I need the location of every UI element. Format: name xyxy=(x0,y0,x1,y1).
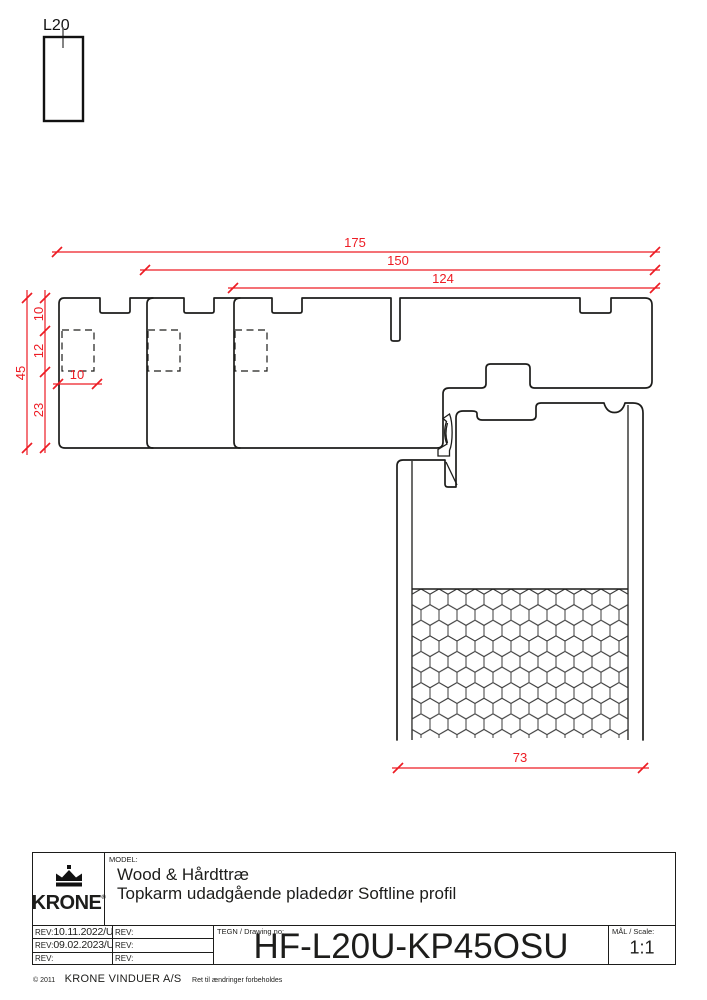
revision-row: REV: 09.02.2023/UK xyxy=(33,939,112,952)
dim-label-23: 23 xyxy=(31,403,46,417)
weather-seal xyxy=(438,414,452,456)
rights-reserved: Ret til ændringer forbeholdes xyxy=(192,977,282,984)
copyright-year: © 2011 xyxy=(33,977,55,984)
drawing-number-cell: TEGN / Drawing no: HF-L20U-KP45OSU xyxy=(214,926,609,965)
revision-column-empty: REV: REV: REV: xyxy=(113,926,214,965)
model-cell: MODEL: Wood & Hårdttræ Topkarm udadgåend… xyxy=(105,853,675,925)
logo-wordmark: KRONE® xyxy=(32,888,106,913)
dimension-150: 150 xyxy=(140,253,660,275)
logo-cell: KRONE® xyxy=(33,853,105,925)
dimension-groove-10: 10 xyxy=(53,367,102,389)
karm-variant-150-edge xyxy=(147,298,153,448)
karm-groove-hidden-1 xyxy=(62,330,94,371)
karm-profile xyxy=(59,298,652,448)
crown-icon xyxy=(51,865,87,888)
company-name: KRONE VINDUER A/S xyxy=(65,973,182,985)
rev-label: REV: xyxy=(115,941,133,950)
dim-label-45: 45 xyxy=(13,366,28,380)
rev-value: 09.02.2023/UK xyxy=(53,939,112,951)
karm-variant-124-edge xyxy=(234,298,240,448)
dim-label-124: 124 xyxy=(432,271,454,286)
dimension-73: 73 xyxy=(392,750,649,773)
technical-drawing: L20 xyxy=(0,0,707,852)
revision-row: REV: xyxy=(33,953,112,965)
dimension-45: 45 xyxy=(13,290,32,455)
dim-label-10: 10 xyxy=(31,307,46,321)
model-line-2: Topkarm udadgående pladedør Softline pro… xyxy=(117,884,675,903)
dimension-10-12-23: 10 12 23 xyxy=(31,290,50,453)
dimension-175: 175 xyxy=(52,235,660,257)
drawing-number: HF-L20U-KP45OSU xyxy=(253,927,568,967)
title-block-top-row: KRONE® MODEL: Wood & Hårdttræ Topkarm ud… xyxy=(33,853,675,926)
revision-row: REV: xyxy=(113,953,213,965)
honeycomb-core-hatch xyxy=(412,589,628,738)
seal-inner-line xyxy=(446,423,448,443)
seal-outline xyxy=(438,414,452,456)
revision-column-dates: REV: 10.11.2022/UK REV: 09.02.2023/UK RE… xyxy=(33,926,113,965)
karm-outline xyxy=(59,298,652,448)
dim-label-150: 150 xyxy=(387,253,409,268)
title-block-bottom-row: REV: 10.11.2022/UK REV: 09.02.2023/UK RE… xyxy=(33,926,675,965)
dim-label-12: 12 xyxy=(31,344,46,358)
karm-groove-hidden-3 xyxy=(235,330,267,371)
dim-label-groove-10: 10 xyxy=(70,367,84,382)
dimension-124: 124 xyxy=(228,271,660,293)
rev-label: REV: xyxy=(35,954,53,963)
rev-value: 10.11.2022/UK xyxy=(53,926,112,938)
karm-groove-hidden-2 xyxy=(148,330,180,371)
scale-label: MÅL / Scale: xyxy=(612,927,654,936)
title-block: KRONE® MODEL: Wood & Hårdttræ Topkarm ud… xyxy=(32,852,676,965)
revision-row: REV: xyxy=(113,939,213,952)
drawing-sheet: L20 xyxy=(0,0,707,1000)
revision-row: REV: xyxy=(113,926,213,939)
scale-value: 1:1 xyxy=(629,937,654,958)
cut-symbol-label: L20 xyxy=(43,17,70,34)
dim-label-175: 175 xyxy=(344,235,366,250)
model-line-1: Wood & Hårdttræ xyxy=(117,865,675,884)
door-profile xyxy=(397,403,643,740)
rev-label: REV: xyxy=(35,928,53,937)
model-label: MODEL: xyxy=(109,855,675,864)
rev-label: REV: xyxy=(115,928,133,937)
scale-cell: MÅL / Scale: 1:1 xyxy=(609,926,675,965)
copyright-line: © 2011 KRONE VINDUER A/S Ret til ændring… xyxy=(33,969,282,987)
cut-position-symbol: L20 xyxy=(43,17,83,121)
rev-label: REV: xyxy=(35,941,53,950)
revision-row: REV: 10.11.2022/UK xyxy=(33,926,112,939)
dim-label-73: 73 xyxy=(513,750,527,765)
cut-symbol-profile-box xyxy=(44,37,83,121)
rev-label: REV: xyxy=(115,954,133,963)
